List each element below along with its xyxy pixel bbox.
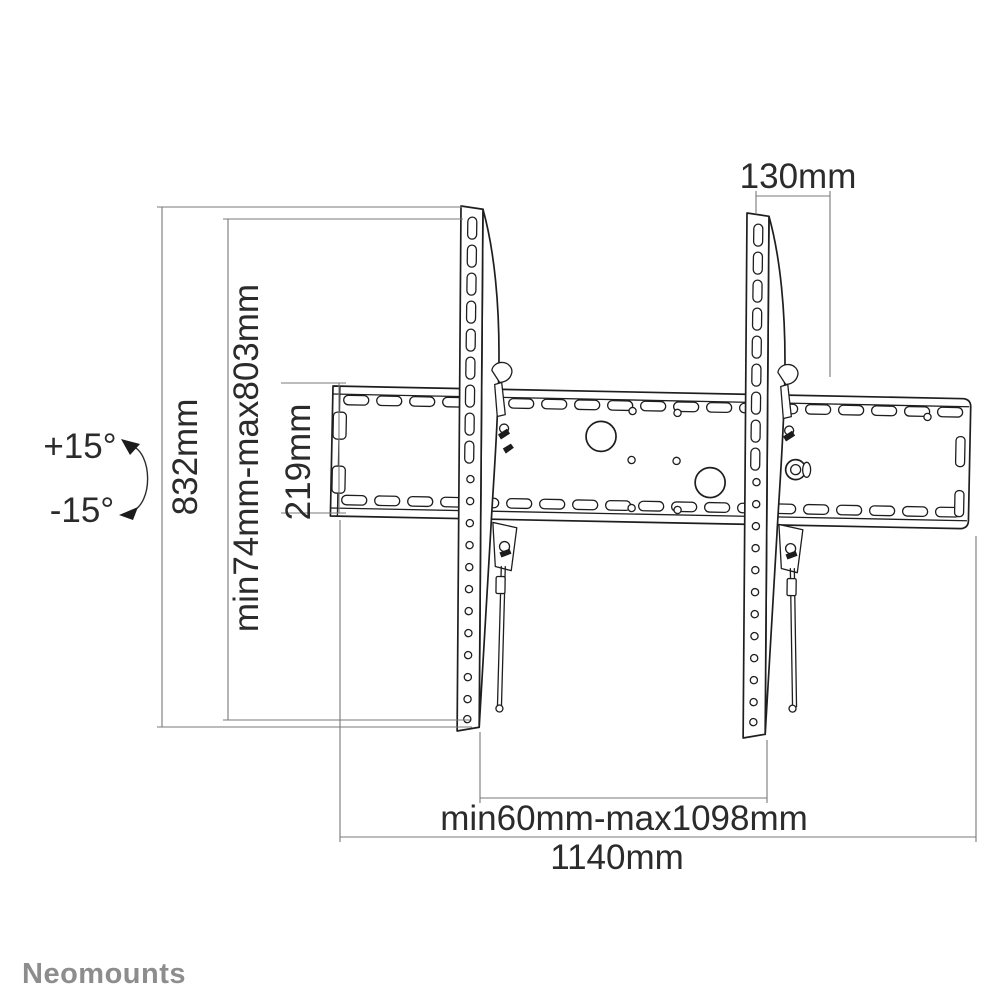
right-bracket-tilt-knob [786, 460, 811, 480]
brand-logo: Neomounts [22, 958, 186, 991]
label-mount-height-range: min74mm-max803mm [227, 284, 266, 632]
label-plate-width: 1140mm [550, 838, 684, 877]
label-tilt-up: +15° [43, 427, 116, 466]
wall-plate [330, 386, 970, 529]
label-mount-width-range: min60mm-max1098mm [440, 799, 808, 838]
label-overall-height: 832mm [166, 399, 205, 516]
label-plate-height: 219mm [279, 404, 318, 521]
technical-drawing-page: 832mm min74mm-max803mm 219mm 130mm min60… [0, 0, 1004, 1004]
label-tilt-down: -15° [50, 491, 115, 530]
mount-diagram: 832mm min74mm-max803mm 219mm 130mm min60… [0, 0, 1004, 1004]
label-bracket-top-offset: 130mm [740, 157, 857, 196]
